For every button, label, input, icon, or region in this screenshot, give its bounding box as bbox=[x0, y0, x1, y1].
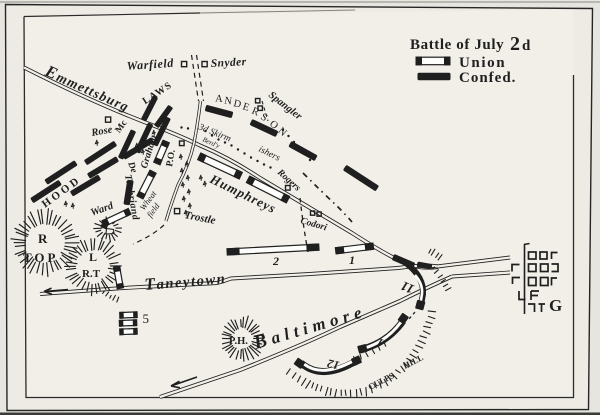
svg-text:G: G bbox=[549, 296, 562, 315]
svg-text:R.T: R.T bbox=[82, 268, 101, 280]
svg-text:Battle of July: Battle of July bbox=[410, 37, 504, 53]
svg-text:5: 5 bbox=[143, 311, 150, 326]
svg-text:d: d bbox=[522, 38, 531, 54]
svg-text:1: 1 bbox=[349, 253, 355, 267]
svg-text:A: A bbox=[215, 94, 224, 106]
svg-text:Confed.: Confed. bbox=[459, 70, 516, 86]
svg-text:2: 2 bbox=[510, 33, 520, 55]
svg-text:L: L bbox=[89, 250, 97, 264]
svg-text:Snyder: Snyder bbox=[211, 56, 247, 70]
svg-text:P.H.: P.H. bbox=[229, 336, 248, 347]
svg-text:R: R bbox=[38, 231, 48, 246]
svg-text:2: 2 bbox=[272, 254, 279, 268]
svg-text:Union: Union bbox=[459, 55, 506, 71]
svg-text:TOP: TOP bbox=[23, 250, 59, 265]
